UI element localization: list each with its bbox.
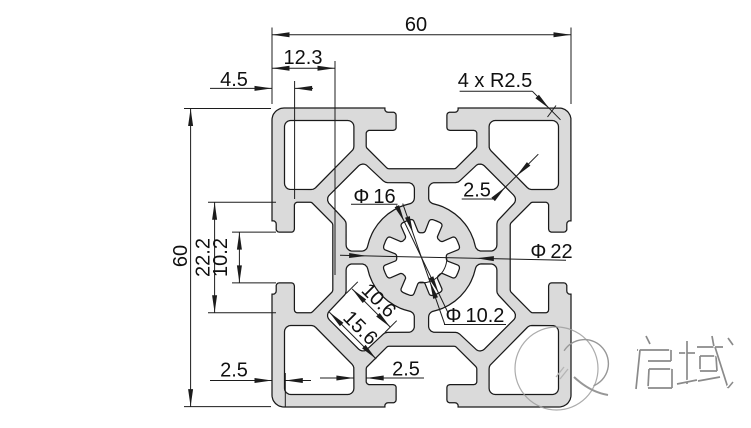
svg-text:60: 60 xyxy=(170,245,192,267)
svg-text:10.2: 10.2 xyxy=(210,238,232,277)
svg-text:60: 60 xyxy=(405,14,427,36)
svg-text:4.5: 4.5 xyxy=(220,69,248,91)
svg-text:Φ 10.2: Φ 10.2 xyxy=(446,305,505,327)
svg-text:12.3: 12.3 xyxy=(284,47,323,69)
svg-text:Φ 16: Φ 16 xyxy=(353,186,395,208)
svg-text:2.5: 2.5 xyxy=(392,359,420,381)
svg-text:Φ 22: Φ 22 xyxy=(530,241,572,263)
svg-text:4 x R2.5: 4 x R2.5 xyxy=(458,70,532,92)
svg-text:2.5: 2.5 xyxy=(220,360,248,382)
svg-text:2.5: 2.5 xyxy=(463,180,491,202)
